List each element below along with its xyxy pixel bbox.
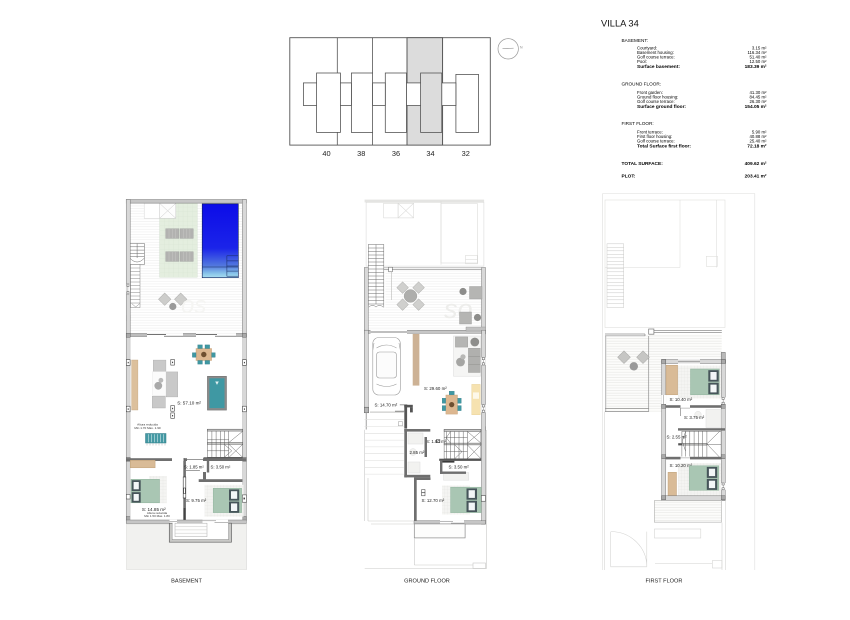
svg-text:Golf course terrace:: Golf course terrace: xyxy=(637,139,675,144)
svg-text:34: 34 xyxy=(426,149,434,158)
svg-text:36: 36 xyxy=(392,149,400,158)
svg-text:Surface ground floor:: Surface ground floor: xyxy=(637,104,686,110)
svg-text:Min 1.50 Max. 1.80: Min 1.50 Max. 1.80 xyxy=(144,514,170,518)
svg-text:203.41 m²: 203.41 m² xyxy=(745,173,767,179)
svg-text:S: 12.70 m²: S: 12.70 m² xyxy=(422,498,445,503)
svg-text:S: 3.50 m²: S: 3.50 m² xyxy=(449,464,470,469)
svg-text:S: 14.70 m²: S: 14.70 m² xyxy=(375,403,398,408)
svg-text:S: 2.55 m²: S: 2.55 m² xyxy=(667,435,688,440)
svg-text:38: 38 xyxy=(357,149,365,158)
svg-text:BASEMENT:: BASEMENT: xyxy=(622,38,649,43)
svg-text:S: 29.60 m²: S: 29.60 m² xyxy=(424,386,447,391)
svg-text:32: 32 xyxy=(462,149,470,158)
svg-text:Total Surface first floor:: Total Surface first floor: xyxy=(637,144,691,150)
svg-text:12.50 m²: 12.50 m² xyxy=(750,59,768,64)
svg-text:72.18 m²: 72.18 m² xyxy=(747,144,767,150)
svg-text:FIRST FLOOR:: FIRST FLOOR: xyxy=(622,121,654,126)
svg-text:S: 1.80 m²: S: 1.80 m² xyxy=(426,439,447,444)
svg-text:PLOT:: PLOT: xyxy=(622,173,636,179)
svg-text:Surface basement:: Surface basement: xyxy=(637,64,680,70)
svg-text:154.05 m²: 154.05 m² xyxy=(745,104,767,110)
svg-text:25.40 m²: 25.40 m² xyxy=(750,139,768,144)
svg-text:S: 57.10 m²: S: 57.10 m² xyxy=(177,400,201,405)
svg-text:26.30 m²: 26.30 m² xyxy=(750,99,768,104)
svg-text:S: 1.85 m²: S: 1.85 m² xyxy=(184,465,204,470)
svg-text:Golf course terrace:: Golf course terrace: xyxy=(637,99,675,104)
svg-text:S: 9.75 m²: S: 9.75 m² xyxy=(186,498,207,503)
svg-text:Min 1.70 Max. 1.90: Min 1.70 Max. 1.90 xyxy=(134,426,161,430)
svg-text:40: 40 xyxy=(322,149,330,158)
svg-text:2.85 m²: 2.85 m² xyxy=(410,450,425,455)
svg-text:183.39 m²: 183.39 m² xyxy=(745,64,767,70)
svg-text:VILLA 34: VILLA 34 xyxy=(601,19,639,29)
svg-text:BASEMENT: BASEMENT xyxy=(171,579,202,585)
svg-text:S: 10.40 m²: S: 10.40 m² xyxy=(670,397,693,402)
svg-text:GROUND FLOOR:: GROUND FLOOR: xyxy=(622,82,662,87)
svg-text:Pool:: Pool: xyxy=(637,59,647,64)
svg-text:os: os xyxy=(181,292,206,319)
svg-text:S: 3.50 m²: S: 3.50 m² xyxy=(211,465,231,470)
svg-text:GROUND FLOOR: GROUND FLOOR xyxy=(404,579,450,585)
svg-text:TOTAL SURFACE:: TOTAL SURFACE: xyxy=(622,161,664,167)
svg-text:S: 3.75 m²: S: 3.75 m² xyxy=(684,415,705,420)
svg-text:FIRST FLOOR: FIRST FLOOR xyxy=(646,579,683,585)
svg-text:409.62 m²: 409.62 m² xyxy=(745,161,767,167)
